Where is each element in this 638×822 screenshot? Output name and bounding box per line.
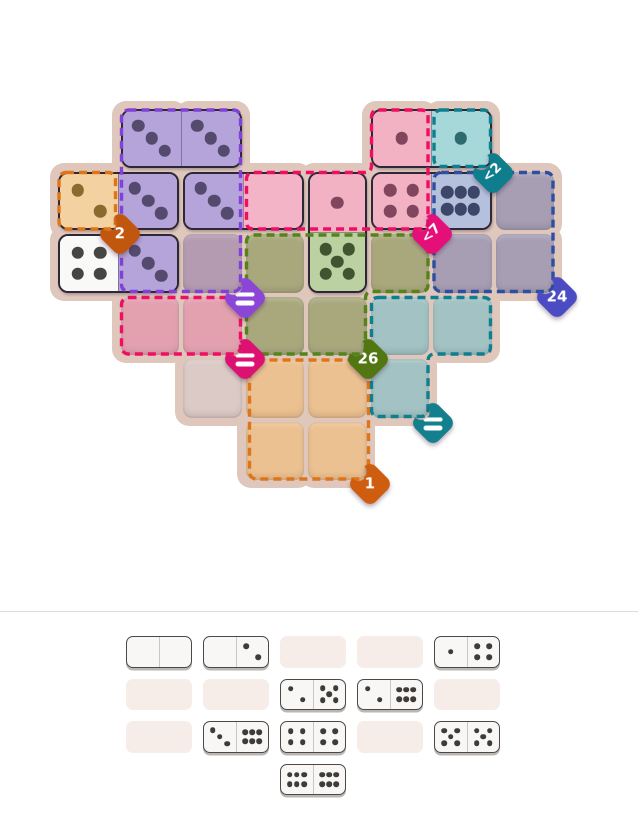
tray-domino[interactable] — [203, 636, 269, 668]
tray-divider — [0, 611, 638, 612]
pip — [287, 781, 293, 787]
pip — [319, 781, 325, 787]
pip — [300, 740, 306, 746]
pip — [255, 655, 261, 661]
pip — [480, 734, 486, 740]
domino-half — [435, 637, 467, 667]
domino-half — [313, 765, 346, 795]
pip — [249, 739, 255, 745]
pip — [257, 739, 263, 745]
tray-slot[interactable] — [357, 636, 423, 668]
pip — [448, 734, 454, 740]
tray-slot[interactable] — [126, 679, 192, 711]
pip — [294, 772, 300, 778]
pip — [486, 655, 492, 661]
tray-slot[interactable] — [126, 721, 192, 753]
pip — [288, 740, 294, 746]
pip — [320, 698, 326, 704]
pip — [332, 740, 338, 746]
tray-domino[interactable] — [280, 721, 346, 753]
pip — [257, 729, 263, 735]
pip — [448, 649, 454, 655]
tray-domino[interactable] — [203, 721, 269, 753]
tray-slot[interactable] — [280, 636, 346, 668]
pip — [441, 740, 447, 746]
pip — [365, 686, 371, 692]
domino-half — [204, 637, 236, 667]
pip — [487, 728, 493, 734]
pip — [474, 728, 480, 734]
domino-half — [281, 680, 313, 710]
pip — [411, 696, 417, 702]
pip — [474, 740, 480, 746]
pip — [224, 741, 230, 747]
pip — [334, 781, 340, 787]
tray-domino[interactable] — [434, 636, 500, 668]
pip — [396, 696, 402, 702]
tray-slot[interactable] — [434, 679, 500, 711]
tray-domino[interactable] — [126, 636, 192, 668]
domino-half — [204, 722, 236, 752]
pip — [326, 781, 332, 787]
pip — [441, 728, 447, 734]
domino-half — [313, 722, 346, 752]
pip — [403, 687, 409, 693]
pip — [294, 781, 300, 787]
pip — [334, 772, 340, 778]
pip — [243, 643, 249, 649]
pip — [210, 727, 216, 733]
pip — [333, 698, 339, 704]
pip — [411, 687, 417, 693]
pip — [319, 772, 325, 778]
pip — [217, 734, 223, 740]
domino-half — [467, 637, 500, 667]
pip — [403, 696, 409, 702]
game-page: 2<2241<726 — [0, 0, 638, 822]
tray-domino[interactable] — [434, 721, 500, 753]
domino-half — [127, 637, 159, 667]
domino-half — [313, 680, 346, 710]
domino-half — [467, 722, 500, 752]
tray-slot[interactable] — [357, 721, 423, 753]
pip — [333, 685, 339, 691]
pip — [242, 729, 248, 735]
pip — [320, 728, 326, 734]
pip — [474, 643, 480, 649]
pip — [300, 697, 306, 703]
domino-tray — [0, 0, 638, 822]
pip — [288, 728, 294, 734]
pip — [320, 740, 326, 746]
domino-half — [281, 722, 313, 752]
domino-half — [236, 722, 269, 752]
pip — [300, 728, 306, 734]
domino-half — [358, 680, 390, 710]
tray-domino[interactable] — [357, 679, 423, 711]
domino-half — [236, 637, 269, 667]
pip — [249, 729, 255, 735]
domino-half — [390, 680, 423, 710]
pip — [455, 728, 461, 734]
pip — [487, 740, 493, 746]
tray-slot[interactable] — [203, 679, 269, 711]
pip — [288, 686, 294, 692]
pip — [242, 739, 248, 745]
pip — [396, 687, 402, 693]
tray-domino[interactable] — [280, 679, 346, 711]
domino-half — [159, 637, 192, 667]
pip — [287, 772, 293, 778]
pip — [455, 740, 461, 746]
domino-half — [281, 765, 313, 795]
pip — [326, 691, 332, 697]
pip — [474, 655, 480, 661]
pip — [332, 728, 338, 734]
pip — [320, 685, 326, 691]
domino-half — [435, 722, 467, 752]
pip — [486, 643, 492, 649]
pip — [377, 697, 383, 703]
tray-domino[interactable] — [280, 764, 346, 796]
pip — [326, 772, 332, 778]
pip — [301, 772, 307, 778]
pip — [301, 781, 307, 787]
